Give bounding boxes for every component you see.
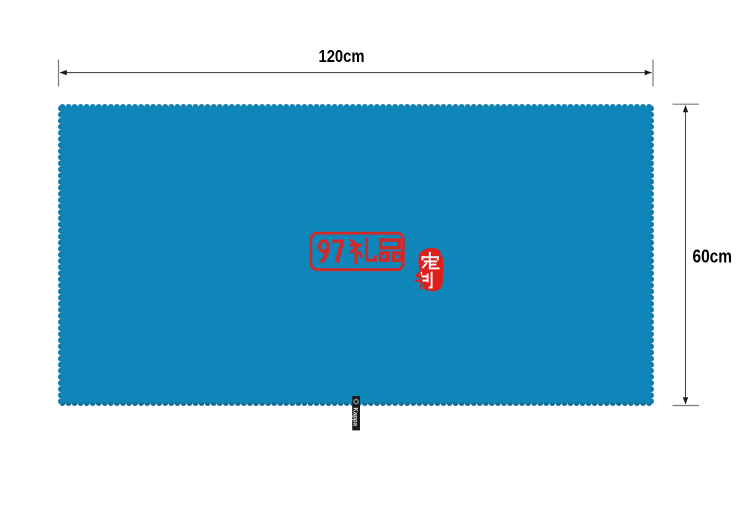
svg-text:Kappa: Kappa — [352, 408, 359, 427]
svg-text:120cm: 120cm — [319, 46, 365, 66]
svg-text:60cm: 60cm — [693, 247, 733, 267]
